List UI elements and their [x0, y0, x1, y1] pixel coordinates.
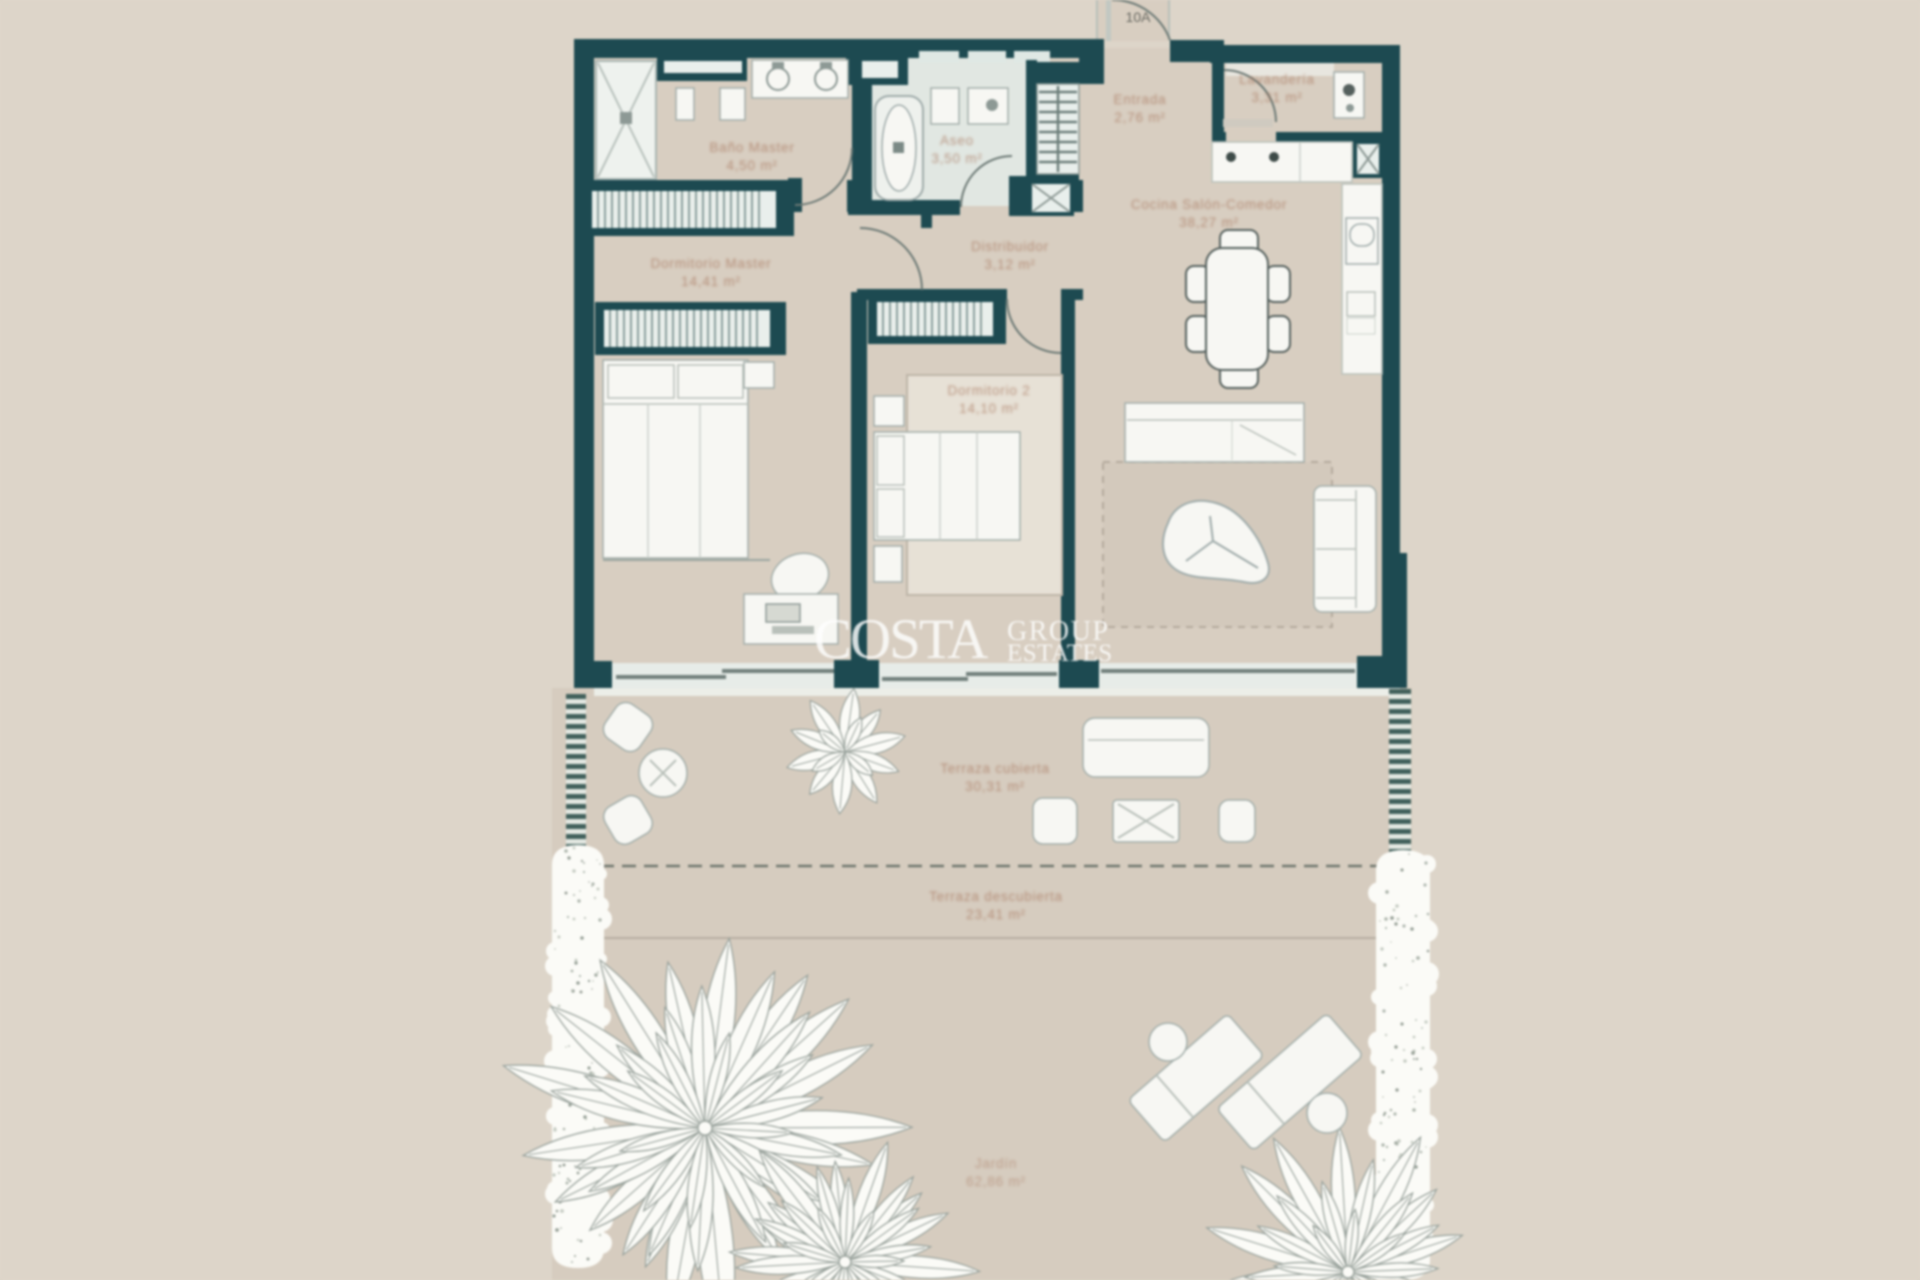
svg-text:COSTA: COSTA	[814, 608, 988, 671]
svg-text:38,27 m²: 38,27 m²	[1179, 215, 1239, 230]
svg-text:23,41 m²: 23,41 m²	[966, 907, 1026, 922]
svg-text:30,31 m²: 30,31 m²	[965, 779, 1025, 794]
svg-text:Cocina Salón-Comedor: Cocina Salón-Comedor	[1131, 197, 1287, 212]
svg-text:3,31 m²: 3,31 m²	[1251, 90, 1302, 105]
svg-text:Entrada: Entrada	[1114, 92, 1167, 107]
svg-text:Jardín: Jardín	[975, 1156, 1017, 1171]
svg-text:Aseo: Aseo	[940, 133, 974, 148]
svg-text:Dormitorio Master: Dormitorio Master	[651, 256, 772, 271]
svg-text:Terraza cubierta: Terraza cubierta	[940, 761, 1050, 776]
svg-text:2,76 m²: 2,76 m²	[1114, 110, 1165, 125]
svg-text:62,86 m²: 62,86 m²	[966, 1174, 1026, 1189]
svg-text:ESTATES: ESTATES	[1007, 640, 1113, 667]
svg-text:Distribuidor: Distribuidor	[971, 239, 1049, 254]
svg-text:Baño Master: Baño Master	[709, 140, 794, 155]
svg-text:Dormitorio 2: Dormitorio 2	[947, 383, 1030, 398]
svg-text:14,10 m²: 14,10 m²	[959, 401, 1019, 416]
svg-text:14,41 m²: 14,41 m²	[681, 274, 741, 289]
svg-text:10A: 10A	[1126, 9, 1152, 25]
svg-text:Lavandería: Lavandería	[1239, 72, 1315, 87]
svg-text:3,12 m²: 3,12 m²	[984, 257, 1035, 272]
svg-text:Terraza descubierta: Terraza descubierta	[929, 889, 1063, 904]
svg-text:3,50 m²: 3,50 m²	[931, 151, 982, 166]
svg-text:4,50 m²: 4,50 m²	[726, 158, 777, 173]
